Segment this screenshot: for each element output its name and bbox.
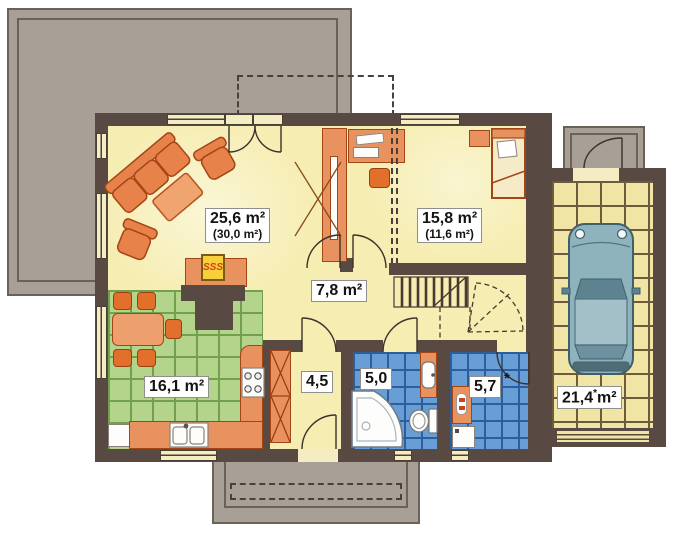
living-area-alt: (30,0 m²) bbox=[210, 228, 265, 241]
garage-area-value: 21,4 bbox=[562, 389, 593, 406]
armchair bbox=[192, 136, 239, 183]
washbasin bbox=[422, 362, 435, 388]
toilet bbox=[410, 409, 438, 433]
bed bbox=[492, 129, 525, 198]
kitchen-sink bbox=[170, 423, 208, 447]
utility-area-star: * bbox=[504, 370, 510, 387]
living-area-value: 25,6 m² bbox=[210, 210, 265, 227]
knee-wall-dashed-line bbox=[392, 128, 397, 263]
floor-plan: SSS bbox=[0, 0, 683, 546]
utility-area-value: 5,7 bbox=[474, 378, 496, 395]
label-living-area: 25,6 m² (30,0 m²) bbox=[205, 208, 270, 243]
vestibule-area-value: 4,5 bbox=[306, 373, 328, 390]
label-garage-area: 21,4*m² bbox=[557, 386, 622, 409]
bedroom-area-alt: (11,6 m²) bbox=[422, 228, 477, 241]
label-bathroom-area: 5,0 bbox=[360, 368, 392, 390]
label-bedroom-area: 15,8 m² (11,6 m²) bbox=[417, 208, 482, 243]
label-vestibule-area: 4,5 bbox=[301, 371, 333, 393]
bedroom-area-value: 15,8 m² bbox=[422, 210, 477, 227]
kitchen-area-value: 16,1 m² bbox=[149, 378, 204, 395]
plan-linework bbox=[0, 0, 683, 546]
armchair bbox=[113, 218, 158, 263]
wardrobe-x-marks bbox=[271, 351, 290, 442]
stairs bbox=[394, 277, 523, 342]
label-utility-area: 5,7 * bbox=[469, 376, 501, 398]
car-icon bbox=[562, 224, 640, 374]
label-hall-area: 7,8 m² bbox=[311, 280, 367, 302]
stove bbox=[242, 368, 264, 397]
bathtub bbox=[352, 391, 402, 447]
hall-opening-x bbox=[295, 162, 341, 236]
hall-area-value: 7,8 m² bbox=[316, 282, 362, 299]
bathroom-area-value: 5,0 bbox=[365, 370, 387, 387]
label-kitchen-area: 16,1 m² bbox=[144, 376, 209, 398]
garage-area-unit: m² bbox=[597, 389, 617, 406]
